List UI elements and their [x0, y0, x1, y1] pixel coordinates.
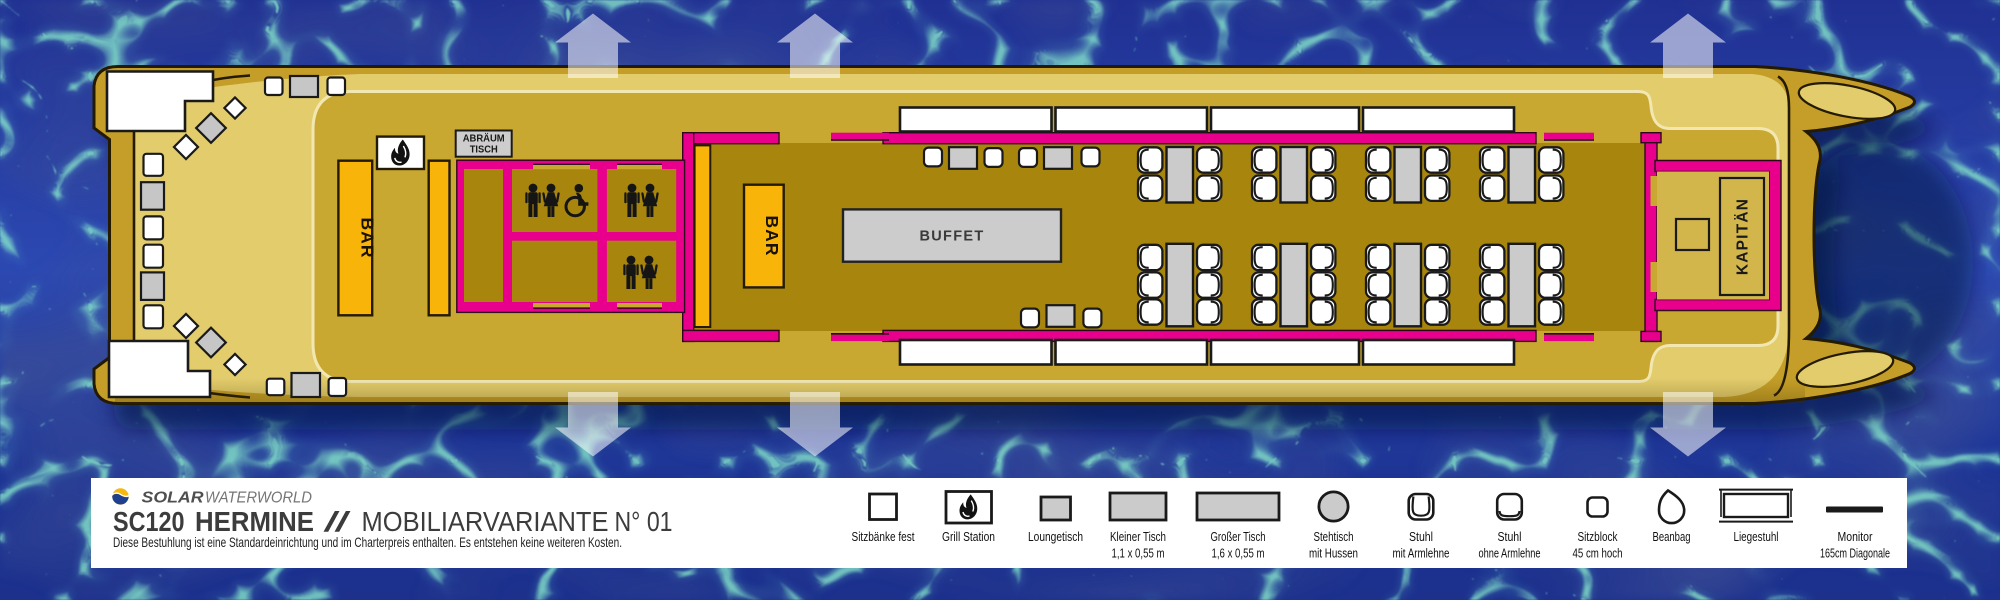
svg-text:Stuhl: Stuhl	[1409, 529, 1433, 544]
svg-text:Großer Tisch: Großer Tisch	[1211, 529, 1266, 544]
svg-text:Diese Bestuhlung ist eine Stan: Diese Bestuhlung ist eine Standardeinric…	[113, 534, 622, 550]
svg-text:Sitzbänke fest: Sitzbänke fest	[852, 529, 915, 544]
svg-text:1,1 x 0,55 m: 1,1 x 0,55 m	[1112, 546, 1165, 561]
svg-text:BAR: BAR	[358, 218, 378, 259]
svg-text:45 cm hoch: 45 cm hoch	[1573, 546, 1623, 561]
svg-text:MOBILIARVARIANTE: MOBILIARVARIANTE	[362, 506, 609, 537]
svg-text:ohne Armlehne: ohne Armlehne	[1479, 546, 1541, 561]
svg-text:mit Hussen: mit Hussen	[1309, 546, 1358, 561]
svg-text:Stehtisch: Stehtisch	[1314, 529, 1354, 544]
svg-text:HERMINE: HERMINE	[195, 506, 314, 537]
svg-text:ABRÄUM: ABRÄUM	[463, 132, 505, 145]
svg-text:WATERWORLD: WATERWORLD	[205, 490, 312, 507]
svg-text:Liegestuhl: Liegestuhl	[1734, 529, 1779, 544]
svg-text:BAR: BAR	[762, 216, 782, 257]
svg-text:1,6 x 0,55 m: 1,6 x 0,55 m	[1212, 546, 1265, 561]
svg-text:Monitor: Monitor	[1838, 529, 1873, 544]
svg-text:165cm Diagonale: 165cm Diagonale	[1820, 546, 1890, 561]
svg-text:SOLAR: SOLAR	[142, 490, 205, 507]
svg-text:KAPITÄN: KAPITÄN	[1735, 198, 1752, 275]
svg-text:TISCH: TISCH	[470, 145, 498, 156]
svg-text:Kleiner Tisch: Kleiner Tisch	[1110, 529, 1166, 544]
svg-text:Grill Station: Grill Station	[942, 529, 995, 544]
svg-text:Sitzblock: Sitzblock	[1578, 529, 1618, 544]
svg-text:mit Armlehne: mit Armlehne	[1393, 546, 1450, 561]
svg-text:Loungetisch: Loungetisch	[1028, 529, 1083, 544]
svg-text:SC120: SC120	[113, 506, 185, 537]
svg-text:Beanbag: Beanbag	[1653, 529, 1691, 544]
svg-text:N° 01: N° 01	[615, 506, 673, 537]
svg-text:Stuhl: Stuhl	[1498, 529, 1522, 544]
svg-text:BUFFET: BUFFET	[920, 229, 985, 245]
